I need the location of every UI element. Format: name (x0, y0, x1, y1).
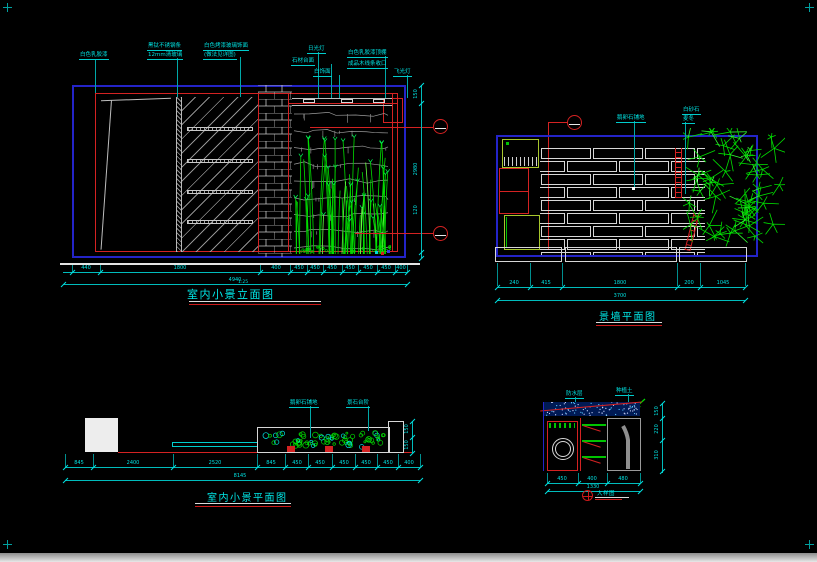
leader-line (310, 406, 311, 438)
leader-line (407, 75, 408, 98)
dim-value: 415 (541, 280, 551, 286)
curb-stone (679, 247, 747, 262)
dim-value: 480 (618, 476, 628, 482)
dim-value: 220 (654, 424, 660, 434)
dim-line-vertical (421, 85, 422, 258)
grass-plants (293, 128, 391, 254)
dim-line-vertical (662, 403, 663, 473)
dim-value: 400 (587, 476, 597, 482)
dim-value: 450 (381, 265, 391, 271)
dim-line-overall (497, 300, 745, 301)
callout-label: 黑钛不锈钢条 (147, 43, 182, 51)
foliage-plants (683, 128, 785, 263)
dim-line (497, 287, 745, 288)
dim-line (63, 272, 407, 273)
glass-shelf (187, 159, 253, 163)
callout-label: 飞光灯 (393, 69, 412, 77)
leader-line (339, 75, 340, 98)
view-title: 景墙平面图 (599, 308, 657, 323)
callout-label: 白砂石 (682, 107, 701, 115)
dim-value: 450 (292, 460, 302, 466)
shelf-brace (583, 425, 600, 432)
curb-stone (495, 247, 562, 262)
glass-partition-plan (172, 442, 258, 447)
red-line (288, 93, 289, 252)
callout-label: 麦冬 (682, 116, 695, 124)
callout-label: 日光灯 (307, 46, 326, 54)
elevation-view: 白色乳胶漆 黑钛不锈钢条 12mm清玻璃 白色烤漆玻璃饰面 (做法见详图) 日光… (55, 40, 455, 310)
dim-value: 240 (509, 280, 519, 286)
spot-elevation-dot (375, 251, 378, 254)
callout-label: 鹅卵石铺地 (289, 400, 319, 408)
glass-shelf (187, 190, 253, 194)
title-underline-red (595, 499, 622, 500)
callout-label: 鹅卵石铺地 (616, 115, 646, 123)
red-line (499, 191, 529, 192)
dim-value: 450 (327, 265, 337, 271)
dim-value: 200 (684, 280, 694, 286)
spot-elevation-dot (387, 250, 390, 253)
datum-marker-icon (433, 226, 448, 241)
drawing-canvas[interactable]: 白色乳胶漆 黑钛不锈钢条 12mm清玻璃 白色烤漆玻璃饰面 (做法见详图) 日光… (0, 0, 817, 562)
light-fixture (373, 99, 385, 103)
leader-line (177, 58, 178, 97)
downpipe (607, 418, 641, 471)
dim-value: 400 (396, 265, 406, 271)
datum-marker-icon (433, 119, 448, 134)
shelf-brace (583, 457, 600, 464)
corner-mark (805, 3, 814, 12)
dim-value: 450 (361, 460, 371, 466)
title-underline-red (189, 304, 321, 305)
corner-mark (805, 540, 814, 549)
dim-value: 2400 (127, 460, 140, 466)
corner-mark (3, 3, 12, 12)
plant-dot (506, 142, 509, 145)
datum-marker-icon (567, 115, 582, 130)
curb-stone (565, 247, 677, 262)
brick-column-hatch (258, 85, 292, 257)
plan-interior-view: 鹅卵石铺地 景石台阶 150 150 845 2400 2520 845 450… (55, 390, 445, 520)
ceiling-line (292, 105, 392, 106)
dim-line-overall (63, 284, 407, 285)
dim-value: 150 (413, 89, 419, 99)
washer-drum-inner (555, 441, 571, 457)
dim-value: 450 (294, 265, 304, 271)
title-underline (596, 322, 662, 323)
dim-value: 450 (310, 265, 320, 271)
detail-view: 防水层 种植土 150 220 310 450 (535, 385, 685, 515)
title-underline (189, 301, 321, 302)
red-line (580, 418, 581, 471)
dim-value: 2980 (413, 163, 419, 176)
leader-line (685, 122, 686, 194)
dim-value: 450 (339, 460, 349, 466)
leader-dot (632, 187, 635, 190)
dim-value: 310 (654, 450, 660, 460)
callout-label: 成品木线条收口 (347, 61, 388, 69)
datum-leader (548, 122, 568, 123)
plant-line (506, 217, 507, 248)
red-paver (362, 446, 370, 452)
dim-value: 450 (315, 460, 325, 466)
dim-line-vertical (412, 421, 413, 453)
dim-line-overall (65, 480, 420, 481)
title-underline (595, 497, 629, 498)
planter-grate-hatch (504, 157, 537, 166)
dim-value: 450 (363, 265, 373, 271)
callout-label: 白饰面 (313, 69, 332, 77)
title-underline-red (195, 506, 291, 507)
dim-value: 1045 (717, 280, 730, 286)
callout-label: 石材台面 (291, 58, 315, 66)
dim-value: 450 (383, 460, 393, 466)
title-underline-red (596, 325, 662, 326)
view-title: 大样图 (597, 489, 615, 497)
dim-value: 2520 (209, 460, 222, 466)
corner-mark (3, 540, 12, 549)
datum-leader (310, 127, 433, 128)
light-fixture (303, 99, 315, 103)
blue-line (543, 402, 544, 471)
red-edging-hatch (675, 148, 682, 198)
status-bar (0, 553, 817, 562)
scale-note: 1:25 (238, 280, 248, 285)
dim-value: 150 (404, 424, 410, 434)
dim-value: 400 (271, 265, 281, 271)
title-underline (195, 503, 291, 504)
leader-line (634, 121, 635, 187)
plan-wall-view: 鹅卵石铺地 白砂石 麦冬 240 415 1800 200 1045 3700 … (490, 95, 790, 335)
dim-value: 450 (345, 265, 355, 271)
leader-line (368, 406, 369, 431)
dim-line-overall (547, 491, 640, 492)
end-stone (388, 421, 404, 453)
dim-value: 845 (266, 460, 276, 466)
callout-label: 白色乳胶漆顶棚 (347, 50, 388, 58)
leader-line (240, 57, 241, 97)
dim-total: 3700 (614, 293, 627, 299)
view-title: 室内小景立面图 (187, 286, 275, 302)
spot-elevation-dot (381, 252, 384, 255)
red-line (258, 93, 259, 252)
dim-value: 450 (557, 476, 567, 482)
glass-shelf (187, 220, 253, 224)
dim-value: 150 (404, 440, 410, 450)
view-title: 室内小景平面图 (207, 489, 288, 504)
dim-line (65, 467, 420, 468)
dim-value: 1800 (614, 280, 627, 286)
detail-bubble-icon (582, 490, 593, 501)
planter-box (504, 215, 540, 250)
dim-value: 400 (404, 460, 414, 466)
light-fixture (341, 99, 353, 103)
callout-label: 景石台阶 (346, 400, 370, 408)
callout-label: 12mm清玻璃 (147, 52, 183, 60)
callout-label: (做法见详图) (203, 52, 237, 60)
callout-label: 白色烤漆玻璃饰面 (203, 43, 249, 51)
glass-panel-hatch (182, 97, 258, 252)
dim-value: 120 (413, 205, 419, 215)
dim-value: 1800 (174, 265, 187, 271)
red-paver (325, 446, 333, 452)
callout-label: 白色乳胶漆 (79, 52, 109, 60)
red-line (288, 103, 398, 104)
shelf-brace (583, 441, 600, 448)
dim-value: 150 (654, 406, 660, 416)
dim-value: 440 (81, 265, 91, 271)
dim-total: 8145 (234, 473, 247, 479)
glass-shelf (187, 127, 253, 131)
column-solid (85, 418, 118, 452)
callout-label: 种植土 (615, 388, 634, 396)
leader-line (95, 59, 96, 93)
dim-value: 845 (74, 460, 84, 466)
red-paver (287, 446, 295, 452)
green-vent-hatch (549, 423, 575, 428)
